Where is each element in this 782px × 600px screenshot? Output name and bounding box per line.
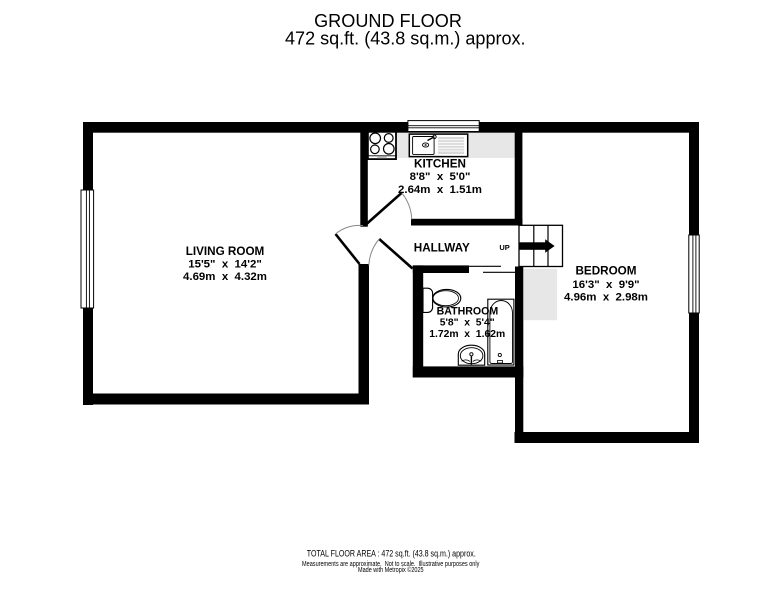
svg-text:15'5" x 14'2": 15'5" x 14'2" xyxy=(188,259,262,271)
svg-text:BATHROOM: BATHROOM xyxy=(437,305,499,317)
svg-text:LIVING ROOM: LIVING ROOM xyxy=(186,245,265,258)
svg-text:2.64m x 1.51m: 2.64m x 1.51m xyxy=(398,184,482,196)
svg-text:16'3" x 9'9": 16'3" x 9'9" xyxy=(572,279,639,291)
svg-text:1.72m x 1.62m: 1.72m x 1.62m xyxy=(429,329,505,340)
svg-text:Made with Metropix ©2025: Made with Metropix ©2025 xyxy=(358,566,424,574)
svg-text:BEDROOM: BEDROOM xyxy=(575,265,636,278)
svg-text:KITCHEN: KITCHEN xyxy=(414,157,466,170)
svg-text:5'8" x 5'4": 5'8" x 5'4" xyxy=(440,317,495,328)
svg-text:TOTAL FLOOR AREA : 472 sq.ft.: TOTAL FLOOR AREA : 472 sq.ft. (43.8 sq.m… xyxy=(307,549,476,559)
svg-text:UP: UP xyxy=(499,243,509,252)
svg-text:4.69m x 4.32m: 4.69m x 4.32m xyxy=(183,271,267,283)
svg-text:4.96m x 2.98m: 4.96m x 2.98m xyxy=(564,292,648,304)
svg-text:HALLWAY: HALLWAY xyxy=(414,242,470,255)
svg-text:472 sq.ft. (43.8 sq.m.) approx: 472 sq.ft. (43.8 sq.m.) approx. xyxy=(285,28,526,48)
svg-text:8'8" x 5'0": 8'8" x 5'0" xyxy=(410,171,471,183)
